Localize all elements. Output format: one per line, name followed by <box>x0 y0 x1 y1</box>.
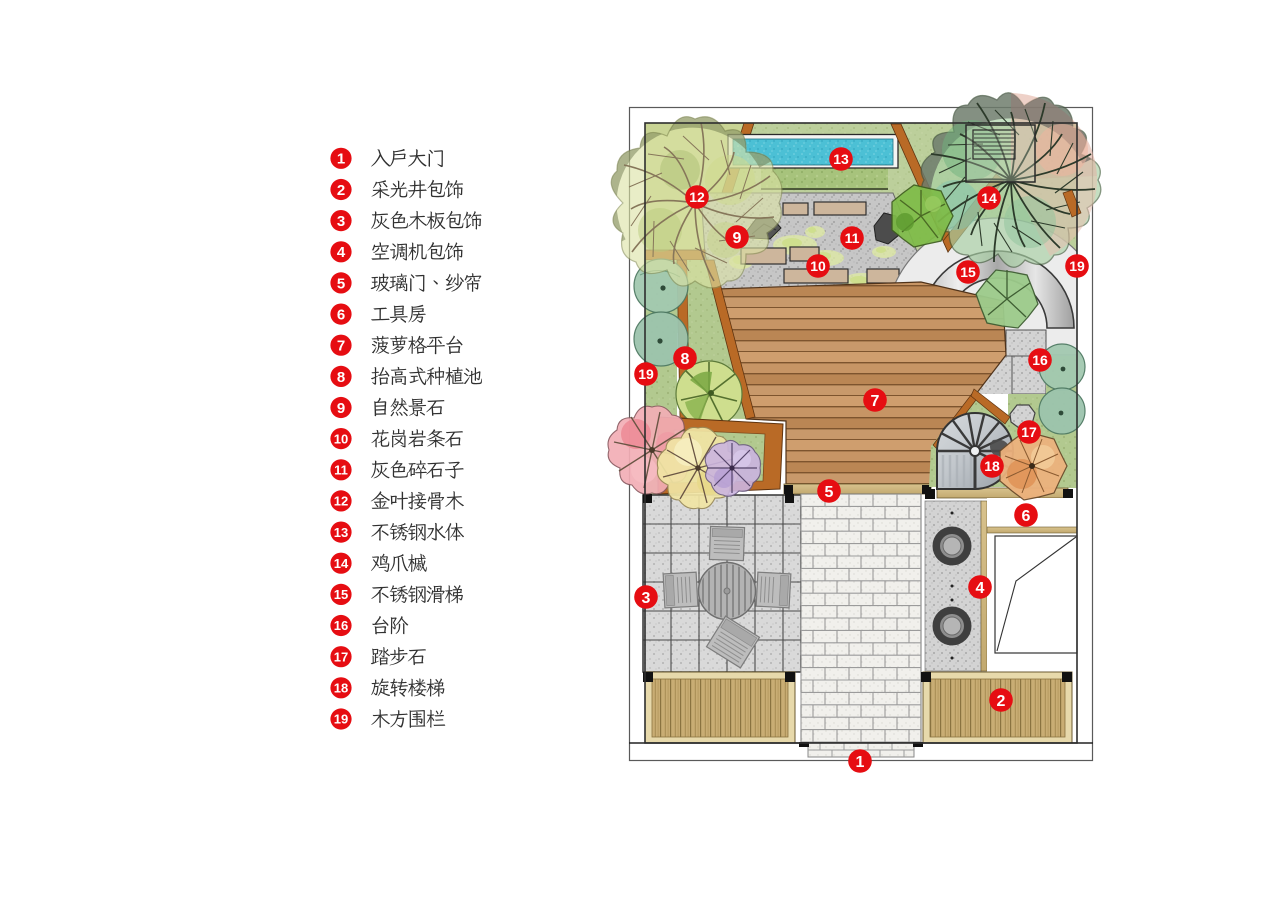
svg-text:9: 9 <box>733 230 742 247</box>
svg-text:13: 13 <box>334 525 348 540</box>
svg-text:11: 11 <box>845 230 860 246</box>
svg-text:4: 4 <box>337 244 346 261</box>
svg-text:17: 17 <box>334 649 348 664</box>
svg-text:14: 14 <box>334 556 349 571</box>
svg-text:4: 4 <box>976 580 985 597</box>
svg-text:6: 6 <box>1022 508 1031 525</box>
svg-text:15: 15 <box>334 587 348 602</box>
svg-text:16: 16 <box>334 618 348 633</box>
svg-text:18: 18 <box>334 681 348 696</box>
svg-text:3: 3 <box>642 590 651 607</box>
svg-text:1: 1 <box>856 754 865 771</box>
svg-text:12: 12 <box>689 189 705 205</box>
svg-text:19: 19 <box>1069 258 1085 274</box>
svg-text:2: 2 <box>337 182 345 199</box>
svg-text:9: 9 <box>337 400 345 417</box>
svg-text:18: 18 <box>984 458 1000 474</box>
svg-text:1: 1 <box>337 151 345 168</box>
svg-text:7: 7 <box>871 393 880 410</box>
svg-text:11: 11 <box>334 463 348 478</box>
svg-text:2: 2 <box>997 693 1006 710</box>
svg-text:3: 3 <box>337 213 345 230</box>
svg-text:14: 14 <box>981 190 997 206</box>
svg-text:17: 17 <box>1021 424 1037 440</box>
svg-text:5: 5 <box>825 484 834 501</box>
svg-text:8: 8 <box>681 351 690 368</box>
svg-text:16: 16 <box>1032 352 1048 368</box>
svg-text:10: 10 <box>810 258 826 274</box>
svg-text:8: 8 <box>337 369 345 386</box>
svg-text:12: 12 <box>334 494 348 509</box>
svg-text:19: 19 <box>638 366 654 382</box>
svg-text:7: 7 <box>337 338 345 355</box>
svg-text:10: 10 <box>334 431 348 446</box>
svg-text:15: 15 <box>960 264 976 280</box>
svg-text:5: 5 <box>337 275 345 292</box>
svg-text:6: 6 <box>337 306 345 323</box>
svg-text:19: 19 <box>334 712 348 727</box>
svg-text:13: 13 <box>833 151 849 167</box>
